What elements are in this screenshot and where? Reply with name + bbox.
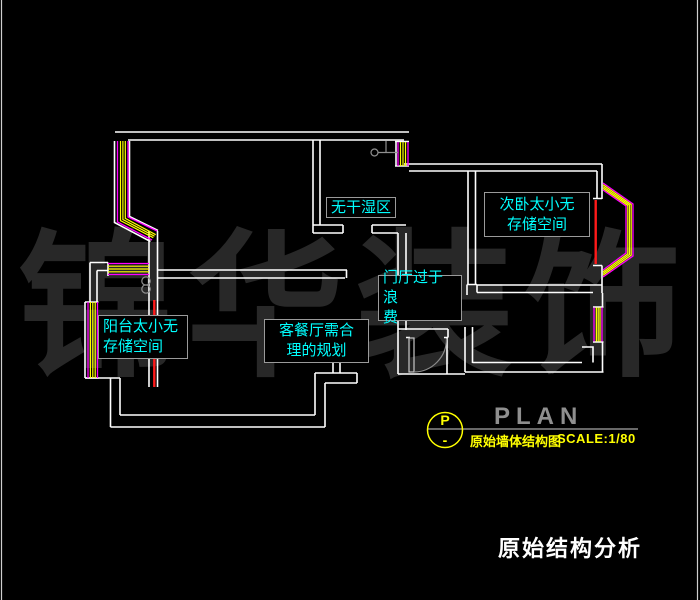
legend-marker-top-label: P (434, 412, 456, 428)
annotation-living-dining: 客餐厅需合 理的规划 (264, 319, 369, 363)
legend-drawing-name: 原始墙体结构图 (470, 431, 561, 450)
page-title: 原始结构分析 (498, 531, 642, 563)
annotation-line: 次卧太小无 (489, 195, 585, 215)
window-kitchen-glass (401, 142, 406, 166)
floor-plan-drawing (0, 0, 700, 600)
wall-interior-long (158, 270, 347, 278)
wall-balcony-left-caps (85, 302, 99, 378)
wall-balcony-top (90, 263, 108, 303)
wall-bedroom-left (468, 171, 476, 285)
plumbing-fixture-leader (378, 141, 398, 153)
annotation-line: 阳台太小无 (103, 317, 183, 337)
annotation-line: 存储空间 (103, 337, 183, 357)
annotation-entry-hall: 门厅过于浪 费 (378, 275, 462, 321)
window-balcony-left-glass (90, 302, 95, 378)
window-balcony-top-glass (108, 266, 149, 272)
drawing-border (2, 0, 698, 600)
wall-window-column-caps (395, 142, 409, 167)
plumbing-fixture-icon (371, 149, 378, 156)
annotation-line: 费 (383, 308, 457, 328)
annotation-line: 门厅过于浪 (383, 268, 457, 308)
legend-title: PLAN (494, 403, 583, 431)
bay-window-left-glass (121, 141, 156, 238)
entry-door-swing-arc (414, 339, 447, 373)
wall-top (115, 132, 409, 140)
wall-bedroom-bottom (467, 266, 602, 296)
wall-balcony-bottom (85, 373, 325, 427)
wall-lines (85, 132, 604, 427)
legend-marker-bottom-label: - (434, 432, 456, 448)
annotation-wet-area: 无干湿区 (326, 197, 396, 218)
entry-door-panel (409, 338, 414, 372)
legend-scale: SCALE:1/80 (557, 431, 636, 446)
annotation-line: 理的规划 (269, 341, 364, 361)
annotation-balcony: 阳台太小无 存储空间 (98, 315, 188, 359)
annotation-second-bedroom: 次卧太小无 存储空间 (484, 192, 590, 237)
wall-study-room (465, 293, 604, 372)
annotation-line: 客餐厅需合 (269, 321, 364, 341)
window-study-glass (596, 308, 600, 342)
wall-bathroom (313, 140, 406, 233)
cad-floor-plan-screenshot: { "plan": { "annotations": { "wet_area":… (0, 0, 700, 600)
bay-window-right-glass (603, 185, 631, 275)
annotation-line: 无干湿区 (331, 199, 391, 216)
annotation-line: 存储空间 (489, 215, 585, 235)
